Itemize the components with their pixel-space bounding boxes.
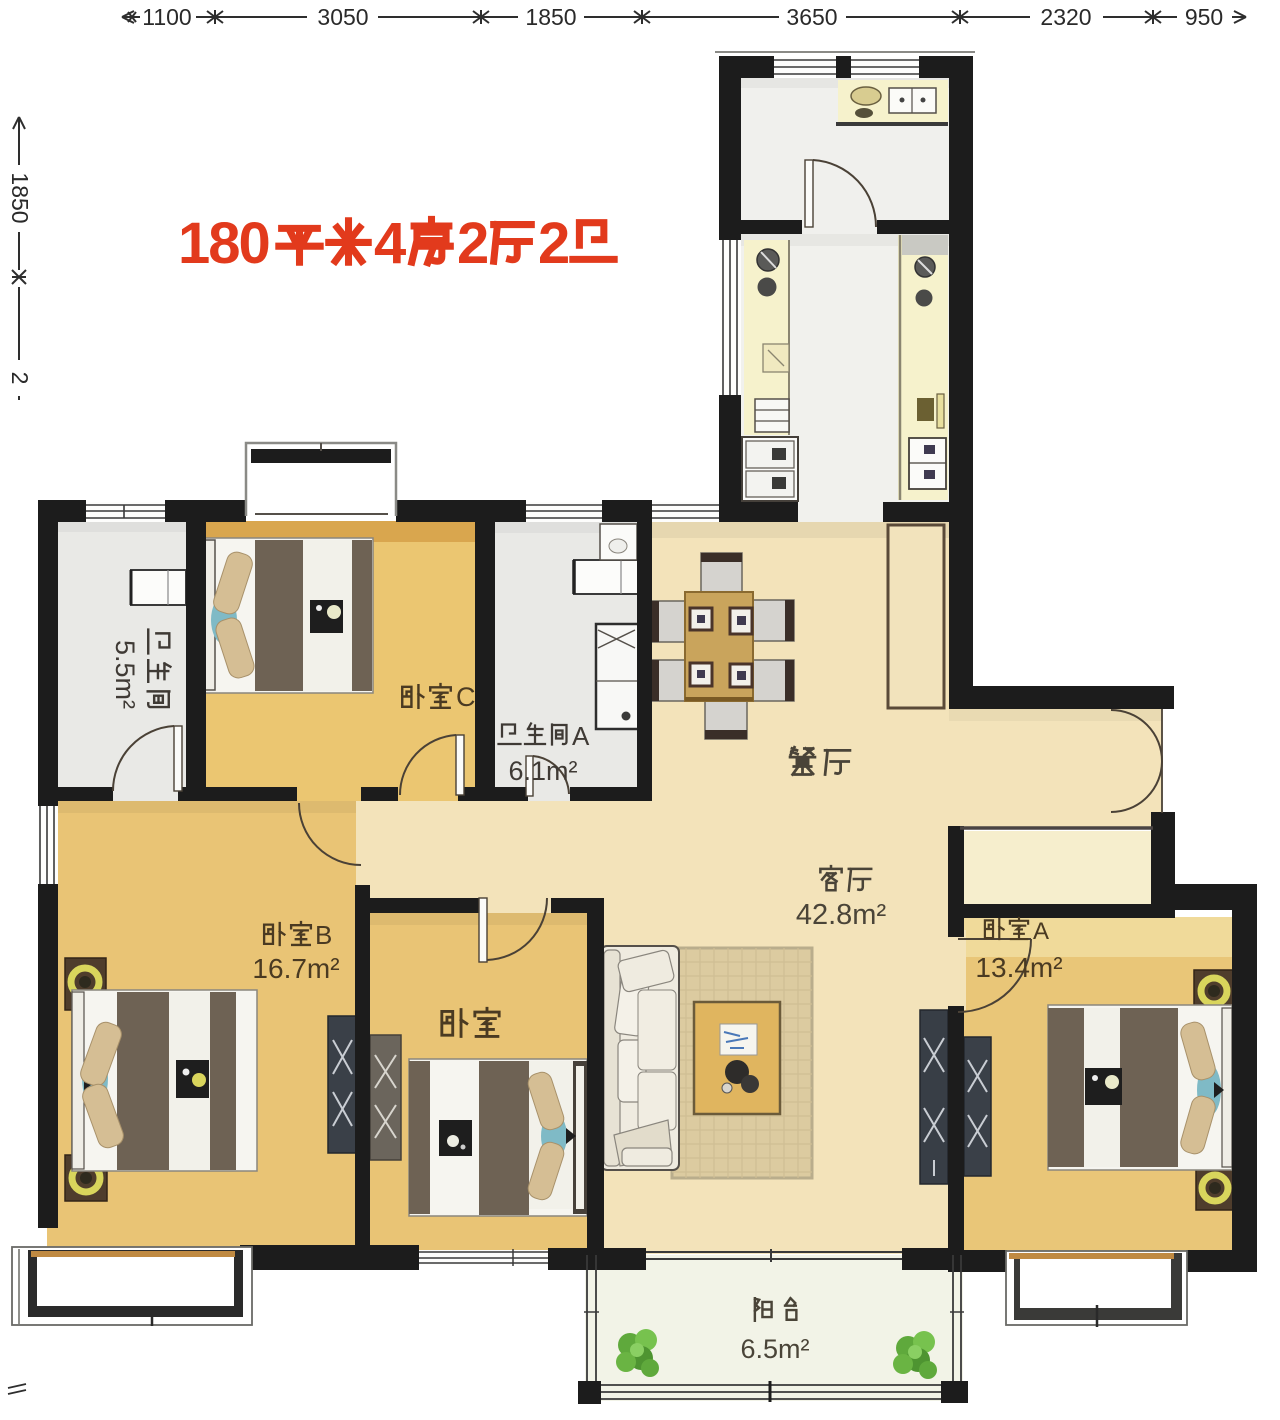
svg-text:6.5m²: 6.5m² [740, 1334, 809, 1364]
svg-text:A: A [572, 721, 590, 751]
svg-text:3050: 3050 [317, 4, 368, 30]
svg-text:1850: 1850 [525, 4, 576, 30]
svg-text:1850: 1850 [7, 172, 33, 223]
svg-text:6.1m²: 6.1m² [508, 756, 577, 786]
svg-text:1100: 1100 [142, 4, 191, 30]
svg-text:2: 2 [7, 372, 33, 385]
svg-text:2: 2 [457, 211, 489, 276]
svg-text:950: 950 [1185, 4, 1223, 30]
svg-text:2320: 2320 [1040, 4, 1091, 30]
svg-text:42.8m²: 42.8m² [796, 899, 887, 931]
svg-text:3650: 3650 [786, 4, 837, 30]
svg-text:C: C [456, 682, 476, 712]
svg-text:5.5m²: 5.5m² [110, 640, 140, 709]
svg-text:4: 4 [374, 211, 406, 276]
svg-text:A: A [1033, 918, 1049, 945]
svg-text:16.7m²: 16.7m² [252, 953, 339, 984]
svg-text:2: 2 [538, 211, 570, 276]
svg-text:13.4m²: 13.4m² [975, 952, 1062, 983]
svg-text:B: B [315, 920, 332, 950]
svg-text:180: 180 [178, 211, 269, 276]
